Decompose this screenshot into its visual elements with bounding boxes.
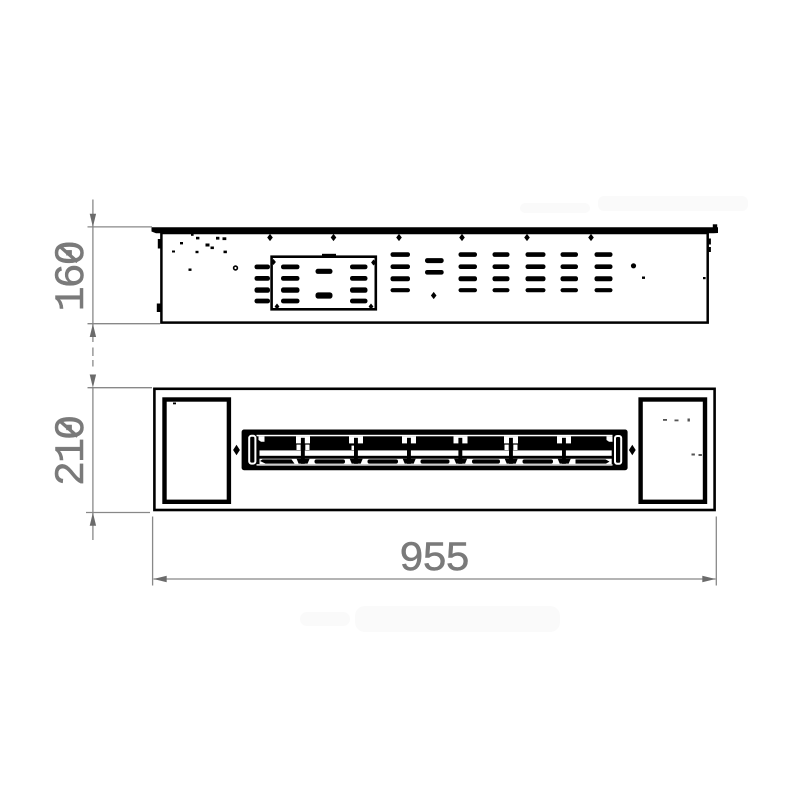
svg-text:955: 955 [399, 535, 468, 583]
svg-text:160: 160 [48, 242, 96, 311]
svg-text:210: 210 [48, 417, 96, 486]
